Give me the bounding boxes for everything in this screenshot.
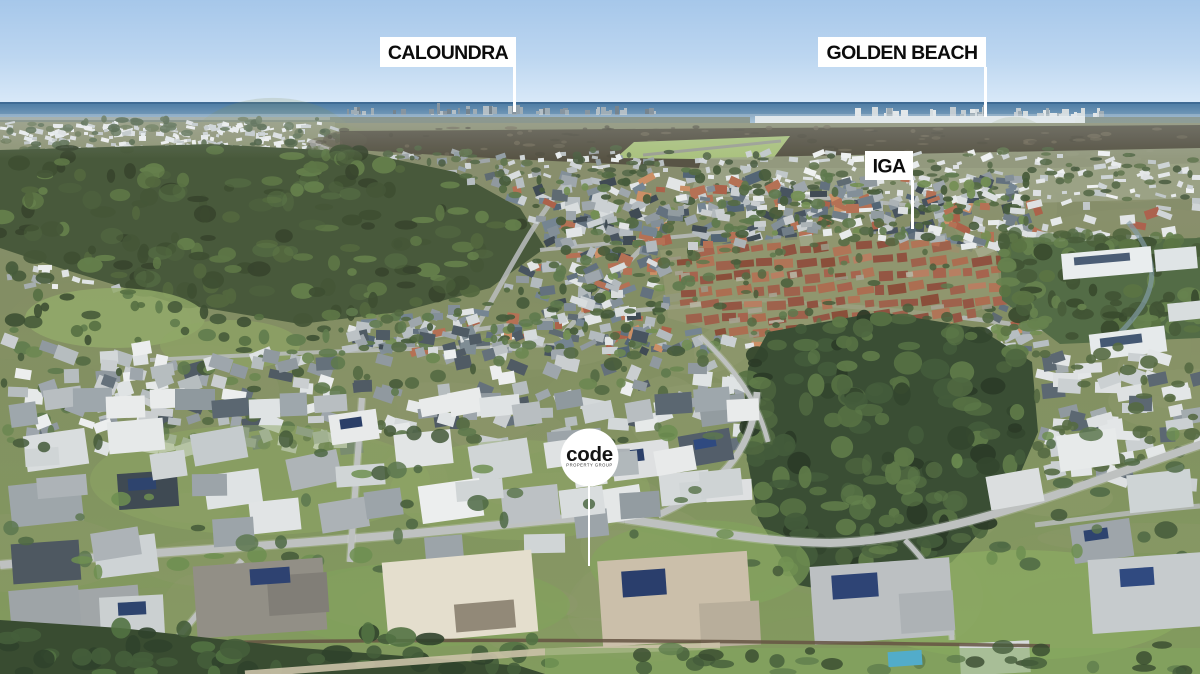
svg-text:PROPERTY GROUP: PROPERTY GROUP — [566, 462, 612, 467]
svg-text:CALOUNDRA: CALOUNDRA — [388, 42, 509, 64]
svg-text:GOLDEN BEACH: GOLDEN BEACH — [827, 42, 978, 64]
svg-text:IGA: IGA — [873, 156, 906, 178]
